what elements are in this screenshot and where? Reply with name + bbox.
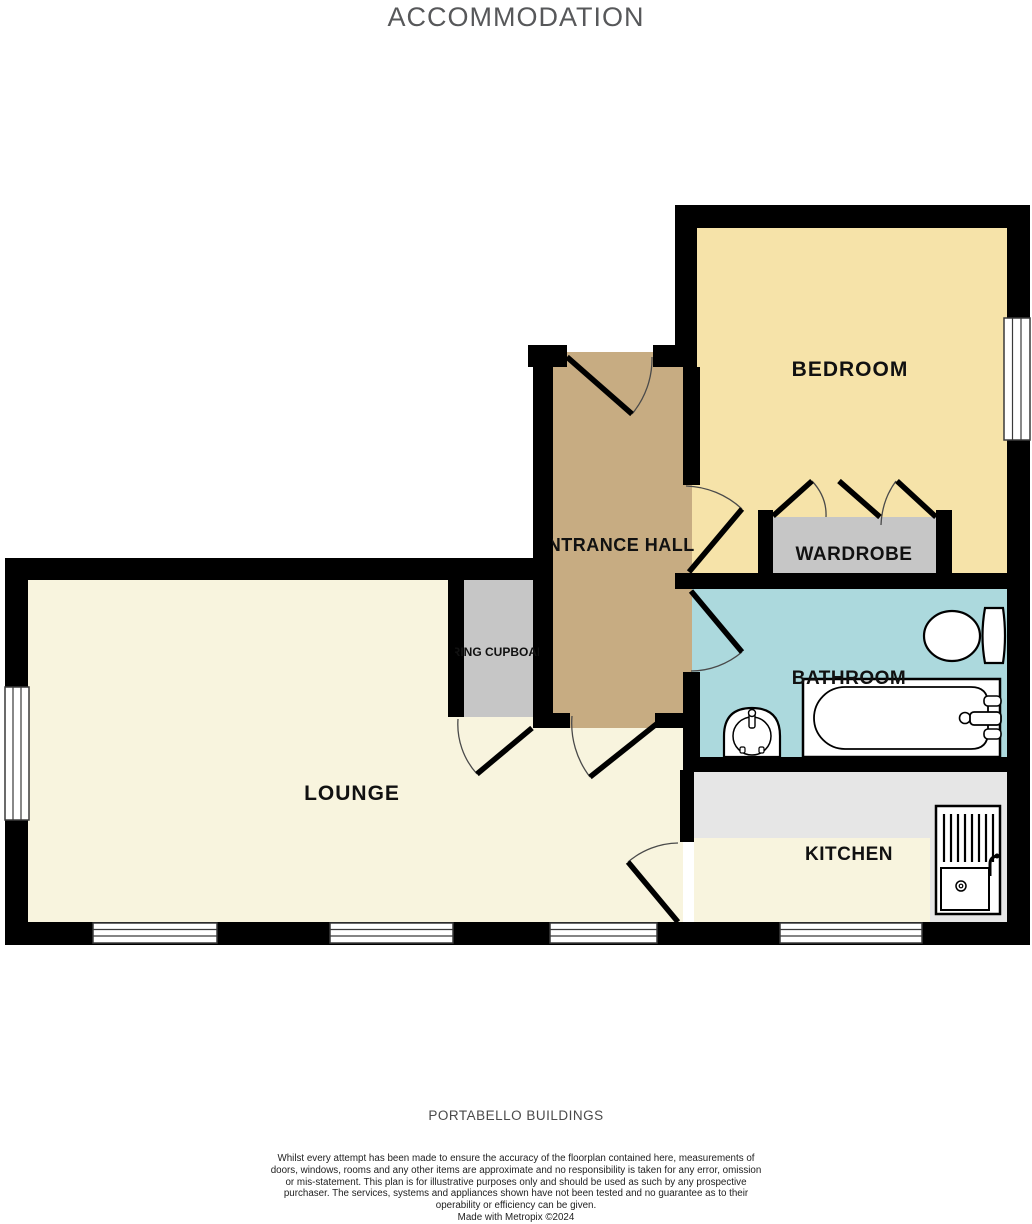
wall-bedroom-left [675,205,697,367]
toilet-cistern [983,608,1006,663]
wall-hall-bedroom-divider [683,367,700,485]
bath-tap-knob-top [984,696,1001,706]
disclaimer-text: Whilst every attempt has been made to en… [266,1153,766,1212]
bedroom-label: BEDROOM [792,358,909,381]
airing-cupboard-label: AIRING CUPBOARD [440,645,555,659]
window-lounge-bottom-2 [330,923,453,943]
wall-hall-stub-left [528,345,567,367]
property-name: PORTABELLO BUILDINGS [0,1108,1032,1123]
window-lounge-left [5,687,29,820]
floorplan: BEDROOM ENTRANCE HALL WARDROBE BATHROOM … [0,0,1032,1224]
footer: PORTABELLO BUILDINGS Whilst every attemp… [0,1108,1032,1223]
window-lounge-bottom-1 [93,923,217,943]
wall-wardrobe-left-stub [758,510,773,574]
lounge-label: LOUNGE [304,782,400,805]
entrance-hall-label: ENTRANCE HALL [535,535,695,555]
toilet [924,608,1005,663]
window-bedroom-right [1004,318,1030,440]
bath-tap-spout [970,712,1001,725]
metropix-credit: Made with Metropix ©2024 [0,1212,1032,1223]
bath-tap-knob-bottom [984,729,1001,739]
bathroom-label: BATHROOM [792,668,906,689]
wall-kitchen-top [683,757,1030,772]
basin-tap-head [749,710,756,717]
kitchen-label: KITCHEN [805,844,893,865]
wall-bedroom-top [675,205,1030,228]
wall-hall-bottom-left-stub [533,713,570,728]
wall-hall-left [533,367,553,728]
wall-wardrobe-right-stub [936,510,952,574]
pedestal-basin [724,708,780,757]
toilet-bowl [924,611,980,661]
window-kitchen-bottom [780,923,922,943]
wall-kitchen-divider [680,770,694,842]
kitchen-sink [936,806,1000,914]
window-lounge-bottom-3 [550,923,657,943]
wall-lounge-top [5,558,553,580]
bathtub [803,679,1001,757]
wall-hall-bathroom-divider [683,672,700,765]
wall-bedroom-bottom [675,573,1030,589]
wardrobe-label: WARDROBE [796,544,913,565]
wall-hall-bottom-right-stub [655,713,683,728]
